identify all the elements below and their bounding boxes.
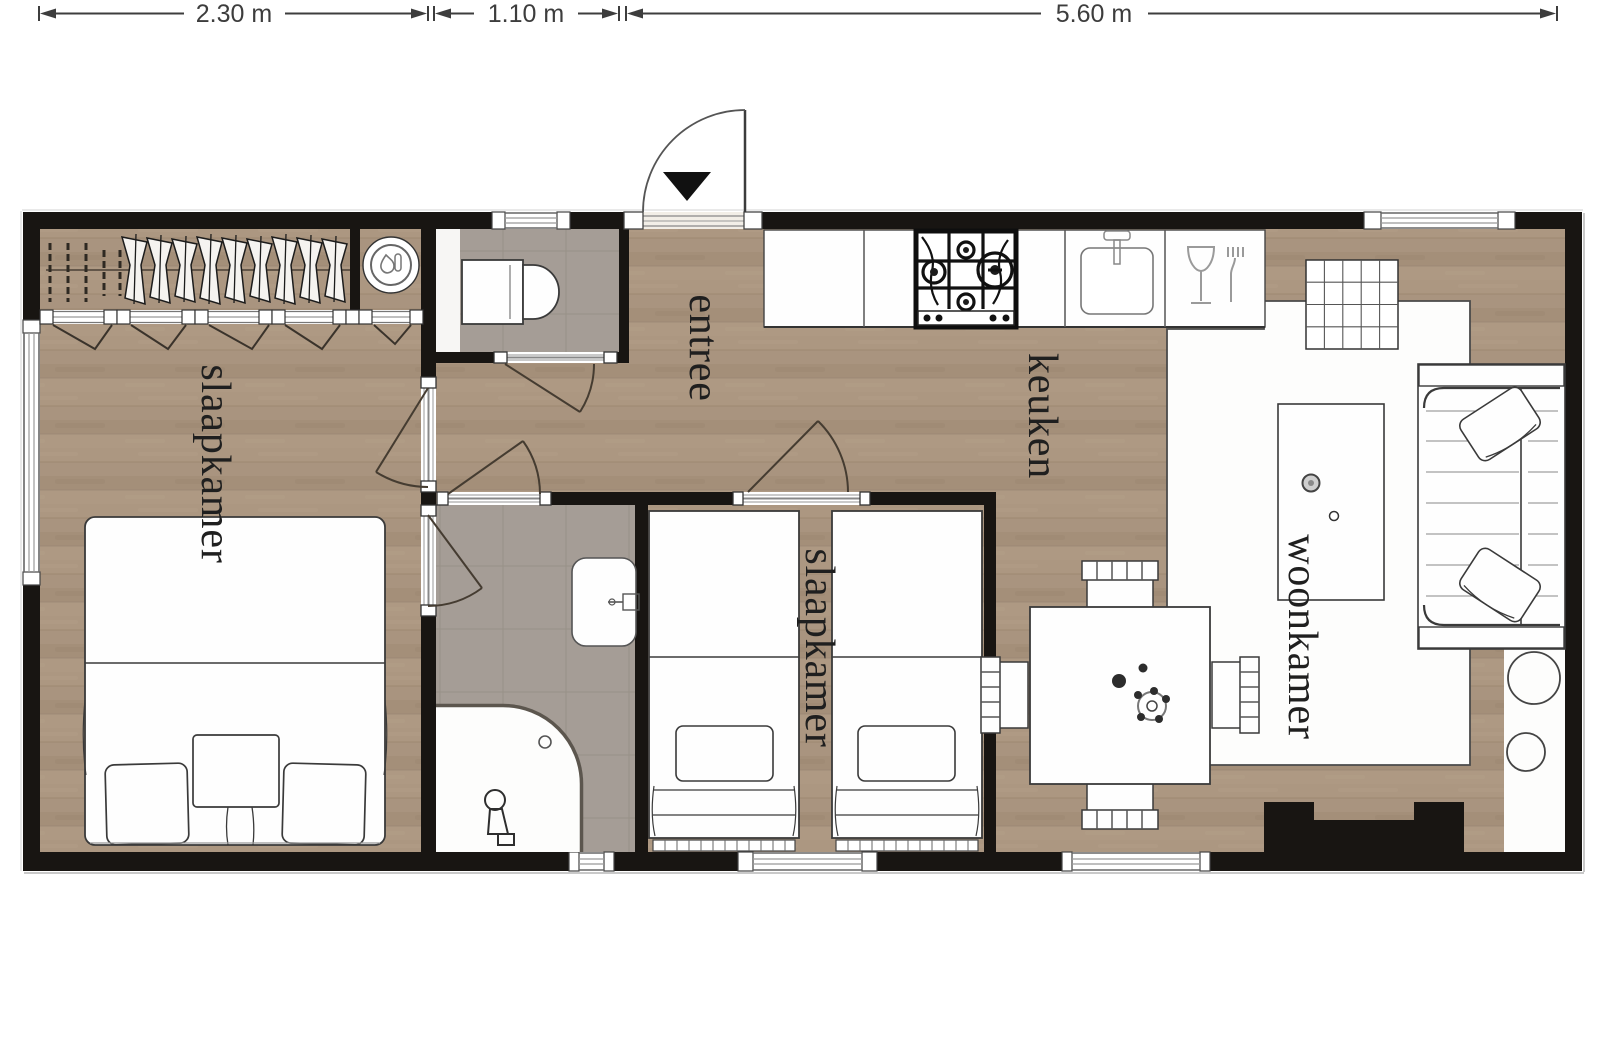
svg-text:slaapkamer: slaapkamer (796, 548, 842, 747)
svg-text:1.10 m: 1.10 m (488, 0, 564, 28)
svg-text:2.30 m: 2.30 m (196, 0, 272, 28)
svg-text:keuken: keuken (1019, 353, 1065, 479)
svg-text:entree: entree (680, 294, 726, 401)
svg-text:woonkamer: woonkamer (1279, 534, 1325, 739)
svg-text:5.60 m: 5.60 m (1056, 0, 1132, 28)
svg-text:slaapkamer: slaapkamer (192, 364, 238, 563)
